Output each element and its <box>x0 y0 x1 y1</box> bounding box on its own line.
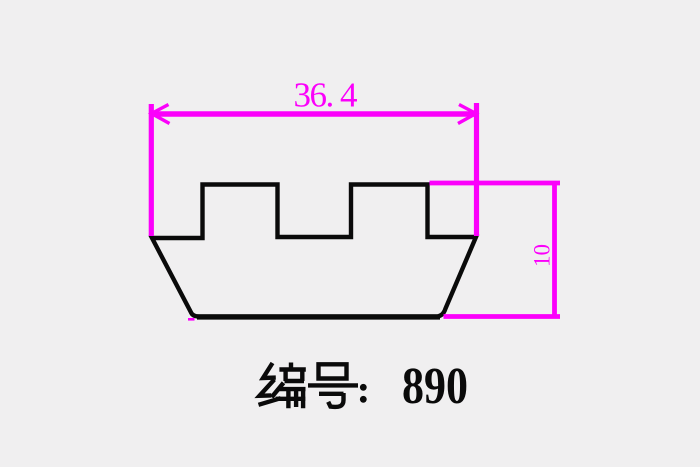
svg-text:36. 4: 36. 4 <box>294 76 358 115</box>
svg-text:10: 10 <box>530 244 556 267</box>
svg-text:890: 890 <box>402 358 468 415</box>
